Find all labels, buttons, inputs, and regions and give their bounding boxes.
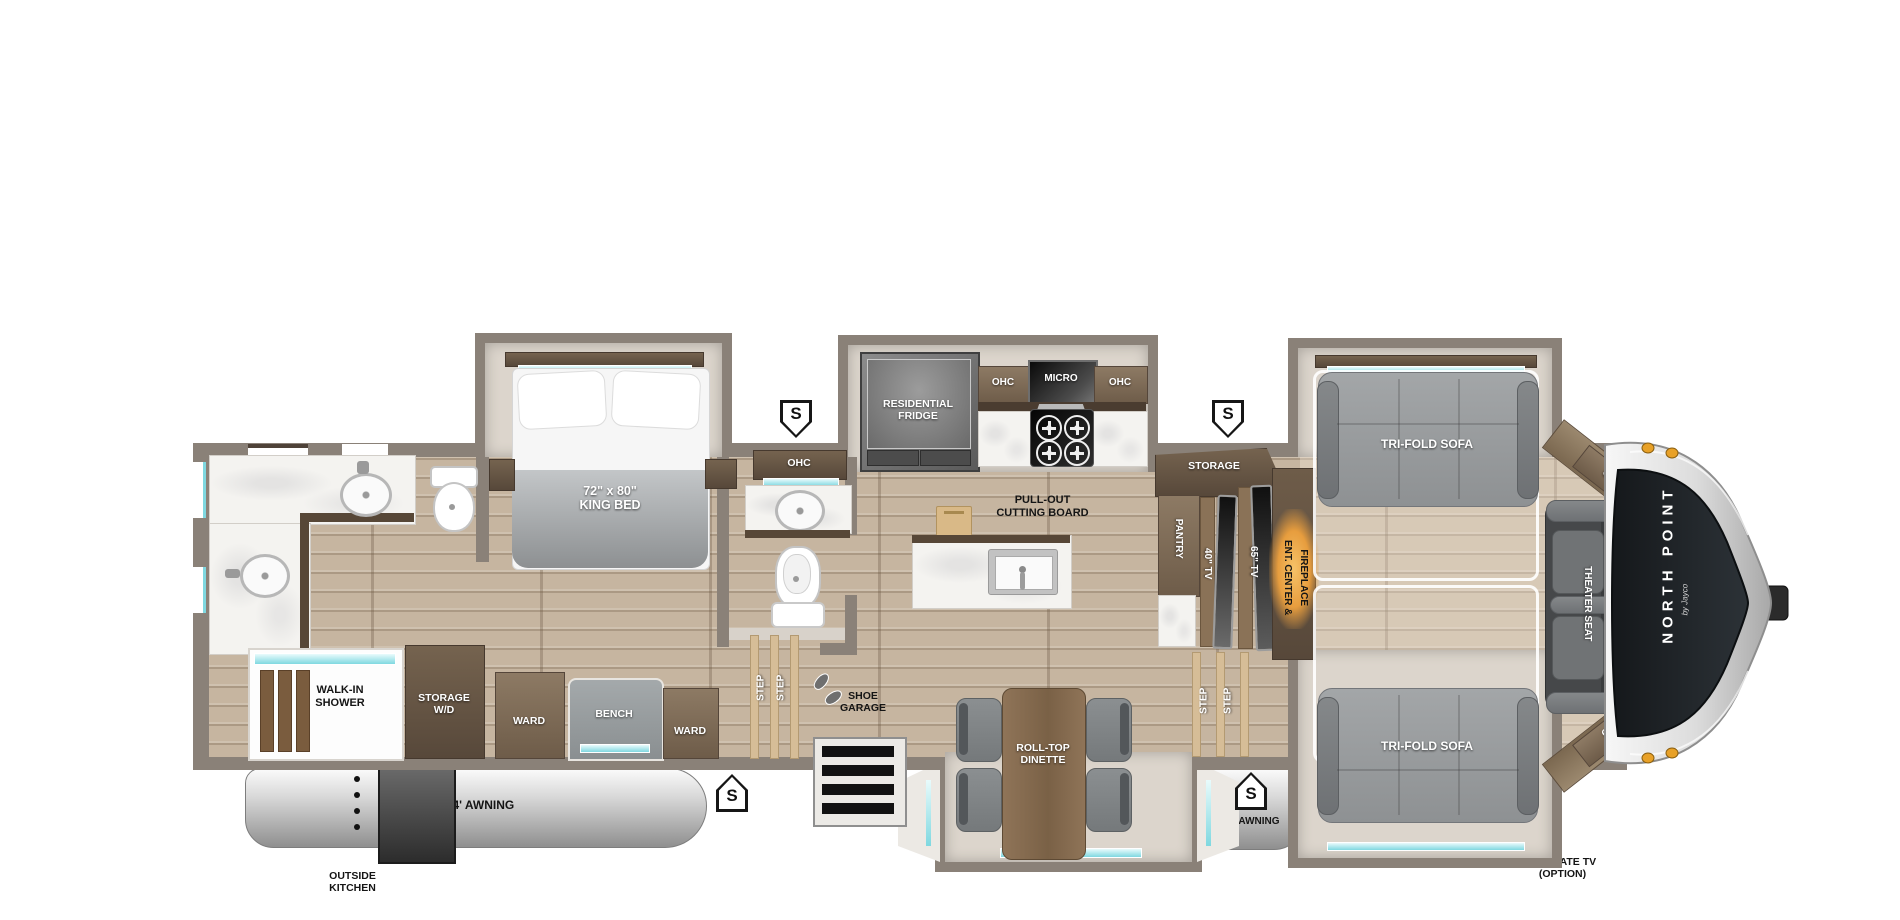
midbath-bottom-stub — [820, 643, 857, 655]
front-cap-brand-by: by Jayco — [1680, 570, 1689, 630]
living-step-rail-3 — [1240, 652, 1249, 757]
residential-fridge-label: RESIDENTIAL FRIDGE — [862, 398, 974, 422]
shoe-garage-label: SHOE GARAGE — [818, 690, 908, 714]
front-cap-brand: NORTH POINT — [1659, 470, 1676, 660]
kitchen-counter-right — [1090, 411, 1148, 467]
vanity-sink-bottom-faucet — [225, 569, 240, 578]
s-marker-front-door: S — [1235, 772, 1267, 810]
entry-steps-unit — [813, 737, 907, 827]
dinette-table — [1002, 688, 1086, 860]
microwave-label: MICRO — [1028, 373, 1094, 385]
ent-center-label-line2: FIREPLACE — [1297, 503, 1309, 653]
dinette-chair-2 — [1086, 698, 1132, 762]
s-marker-midbath: S — [780, 400, 812, 438]
front-cap — [1560, 430, 1795, 780]
pantry-label: PANTRY — [1172, 509, 1184, 569]
pantry-counter — [1158, 595, 1196, 647]
burner-4 — [1064, 440, 1090, 466]
dinette-chair-4 — [1086, 768, 1132, 832]
entry-step-label-1: STEP — [755, 662, 767, 714]
outside-kitchen-label: OUTSIDE KITCHEN — [295, 870, 410, 894]
cooktop — [1030, 409, 1094, 467]
walkin-shower-label: WALK-IN SHOWER — [295, 684, 385, 709]
kitchen-ohc-right-label: OHC — [1094, 377, 1146, 389]
midbath-ohc-label: OHC — [753, 457, 845, 469]
tv-40-label: 40" TV — [1201, 535, 1213, 593]
tv-65-label: 65" TV — [1247, 533, 1259, 591]
media-storage-label: STORAGE — [1155, 460, 1273, 472]
s-marker-kitchen: S — [1212, 400, 1244, 438]
bench-label: BENCH — [568, 708, 660, 720]
midbath-sink — [775, 490, 825, 532]
kitchen-ohc-left-label: OHC — [978, 377, 1028, 389]
ent-center-fireplace — [1272, 468, 1316, 660]
midbath-toilet — [771, 546, 821, 626]
living-step-label-2: STEP — [1222, 675, 1234, 727]
burner-2 — [1064, 415, 1090, 441]
entry-step-rail-3 — [790, 635, 799, 759]
ward-right-label: WARD — [660, 725, 720, 737]
vanity-sink-top — [340, 473, 392, 517]
burner-1 — [1036, 415, 1062, 441]
ent-center-label-line1: ENT. CENTER & — [1281, 503, 1293, 653]
sofa-bottom-window — [1327, 842, 1525, 851]
vanity-edge-v — [300, 513, 309, 653]
storage-wd-label: STORAGE W/D — [400, 692, 488, 716]
tri-fold-sofa-top-label: TRI-FOLD SOFA — [1372, 438, 1482, 452]
vanity-sink-top-faucet — [357, 461, 369, 474]
tri-fold-sofa-bottom — [1318, 688, 1538, 823]
king-bed — [512, 368, 708, 568]
king-bed-label: 72" x 80" KING BED — [555, 484, 665, 513]
bottom-wall-3 — [1192, 757, 1298, 770]
dinette-chair-1 — [956, 698, 1002, 762]
midbath-counter-edge — [745, 530, 850, 538]
pillow-right — [611, 370, 702, 431]
ward-right — [663, 688, 719, 759]
dinette-wing-left-window — [926, 780, 931, 846]
awning-hinge-dots — [354, 776, 360, 836]
living-step-label-1: STEP — [1198, 675, 1210, 727]
entry-step-label-2: STEP — [775, 662, 787, 714]
ward-left-label: WARD — [495, 715, 563, 727]
vanity-sink-bottom — [240, 554, 290, 598]
island-label: PULL-OUT CUTTING BOARD — [975, 494, 1110, 519]
burner-3 — [1036, 440, 1062, 466]
dinette-wing-right-window — [1206, 780, 1211, 846]
dinette-label: ROLL-TOP DINETTE — [997, 742, 1089, 766]
outside-kitchen-box — [378, 766, 456, 864]
s-marker-entry: S — [716, 774, 748, 812]
island-sink — [988, 549, 1058, 595]
rear-toilet — [430, 466, 474, 532]
midbath-floor-sill — [729, 628, 845, 640]
rear-window-2 — [193, 567, 206, 613]
rear-window-1 — [193, 462, 206, 518]
tri-fold-sofa-bottom-label: TRI-FOLD SOFA — [1372, 740, 1482, 754]
pillow-left — [517, 370, 608, 431]
rv-floorplan: 14' AWNING OUTSIDE KITCHEN 14' AWNING TA… — [0, 0, 1900, 920]
dinette-chair-3 — [956, 768, 1002, 832]
nightstand-left — [489, 459, 515, 491]
kitchen-counter-left — [978, 411, 1034, 467]
nightstand-right — [705, 459, 737, 489]
